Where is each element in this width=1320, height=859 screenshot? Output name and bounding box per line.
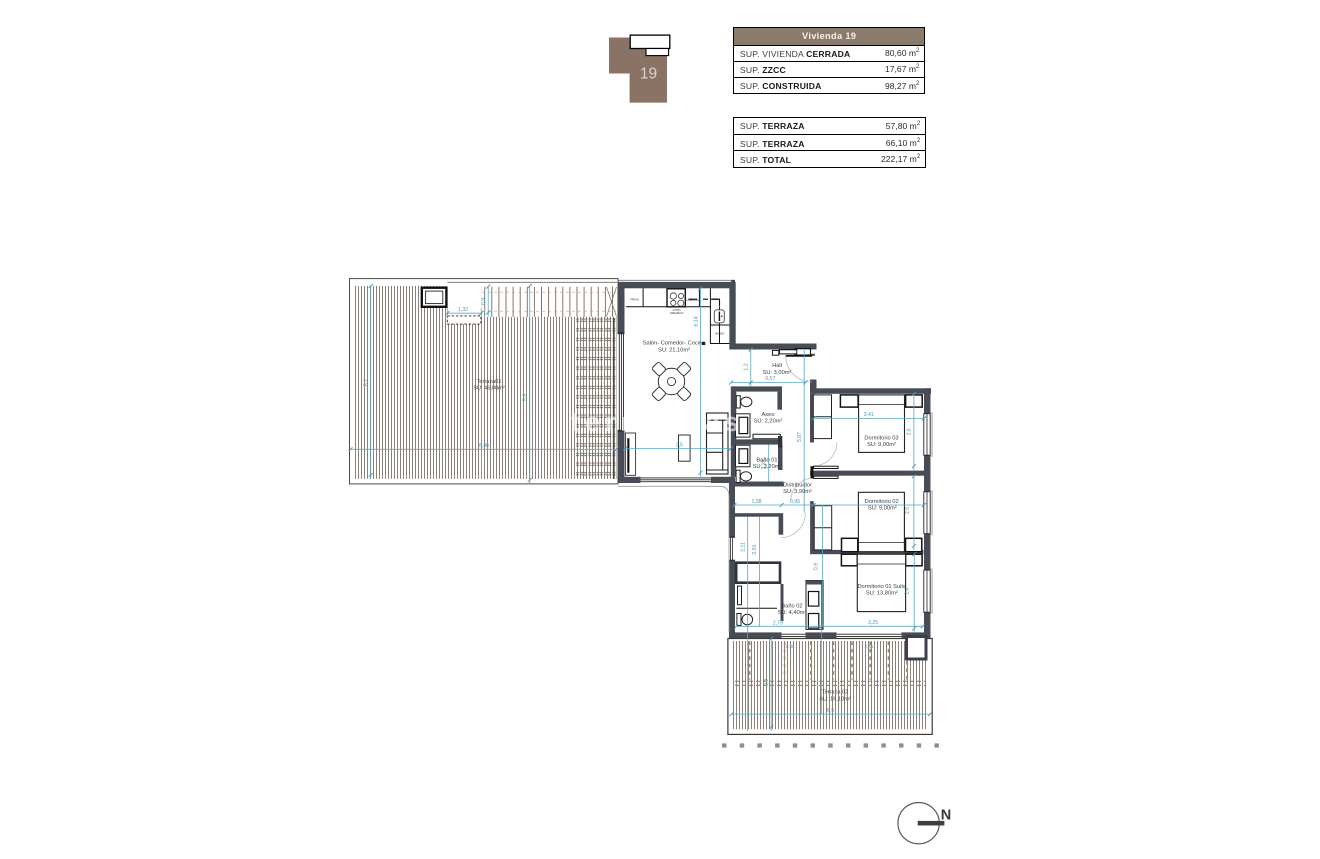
- svg-text:SU: 4,40m²: SU: 4,40m²: [778, 610, 807, 616]
- svg-text:1,48: 1,48: [786, 644, 795, 649]
- svg-text:1,2: 1,2: [744, 363, 750, 370]
- svg-text:Distribuidor: Distribuidor: [783, 482, 812, 488]
- svg-text:SU: 16,10m²: SU: 16,10m²: [819, 696, 851, 702]
- svg-text:Baño 02: Baño 02: [781, 604, 802, 610]
- svg-text:Dormitorio 02: Dormitorio 02: [865, 499, 899, 505]
- svg-text:3,41: 3,41: [864, 412, 874, 418]
- svg-text:0,91: 0,91: [752, 544, 758, 554]
- svg-text:Salón- Comedor- Cocina: Salón- Comedor- Cocina: [643, 341, 706, 347]
- svg-text:Aseo: Aseo: [762, 412, 775, 418]
- svg-text:2,95: 2,95: [865, 644, 874, 649]
- svg-text:SU: 2,20m²: SU: 2,20m²: [754, 419, 783, 425]
- svg-text:2,5: 2,5: [905, 507, 911, 514]
- svg-text:0,9: 0,9: [814, 563, 820, 570]
- svg-text:Dormitorio 03: Dormitorio 03: [864, 435, 898, 441]
- svg-text:1,38: 1,38: [751, 499, 761, 505]
- svg-text:Terraza 02: Terraza 02: [822, 690, 848, 696]
- svg-text:N: N: [941, 808, 951, 824]
- svg-text:terramsa: terramsa: [571, 407, 725, 437]
- svg-text:0,95: 0,95: [790, 499, 800, 505]
- svg-text:6,9: 6,9: [827, 708, 834, 714]
- svg-text:Baño 01: Baño 01: [756, 457, 777, 463]
- svg-text:0,57: 0,57: [765, 376, 775, 382]
- svg-text:6,14: 6,14: [693, 316, 699, 326]
- svg-text:SU: 45,00m²: SU: 45,00m²: [473, 386, 505, 392]
- svg-text:8,2: 8,2: [363, 379, 369, 386]
- svg-text:HORNO: HORNO: [715, 331, 725, 335]
- svg-text:Terraza01: Terraza01: [477, 379, 502, 385]
- svg-text:3,25: 3,25: [868, 620, 878, 626]
- svg-text:0,9: 0,9: [481, 298, 487, 305]
- svg-text:2,9: 2,9: [764, 679, 770, 686]
- svg-text:SU: 21,10m²: SU: 21,10m²: [658, 347, 690, 353]
- svg-text:SU: 3,90m²: SU: 3,90m²: [783, 489, 812, 495]
- svg-text:SU: 9,00m²: SU: 9,00m²: [868, 506, 897, 512]
- svg-text:SU: 13,80m²: SU: 13,80m²: [866, 591, 898, 597]
- svg-text:SU: 3,20m²: SU: 3,20m²: [753, 464, 782, 470]
- svg-text:1,32: 1,32: [458, 307, 468, 313]
- svg-text:Dormitorio 01 Suite: Dormitorio 01 Suite: [857, 584, 906, 590]
- svg-text:SU: 3,00m²: SU: 3,00m²: [763, 370, 792, 376]
- svg-text:Hall: Hall: [772, 363, 782, 369]
- svg-text:SU: 9,00m²: SU: 9,00m²: [867, 442, 896, 448]
- svg-text:3,5: 3,5: [676, 442, 683, 448]
- svg-text:5,9: 5,9: [523, 394, 529, 401]
- svg-text:8,46: 8,46: [479, 443, 489, 449]
- svg-text:s: s: [724, 407, 739, 437]
- svg-text:FRIGO: FRIGO: [630, 297, 640, 301]
- svg-text:5,87: 5,87: [797, 432, 803, 442]
- svg-text:2,11: 2,11: [740, 542, 746, 552]
- svg-text:2,6: 2,6: [907, 428, 913, 435]
- svg-text:2,79: 2,79: [773, 620, 783, 626]
- svg-text:CERAMICA: CERAMICA: [670, 311, 684, 315]
